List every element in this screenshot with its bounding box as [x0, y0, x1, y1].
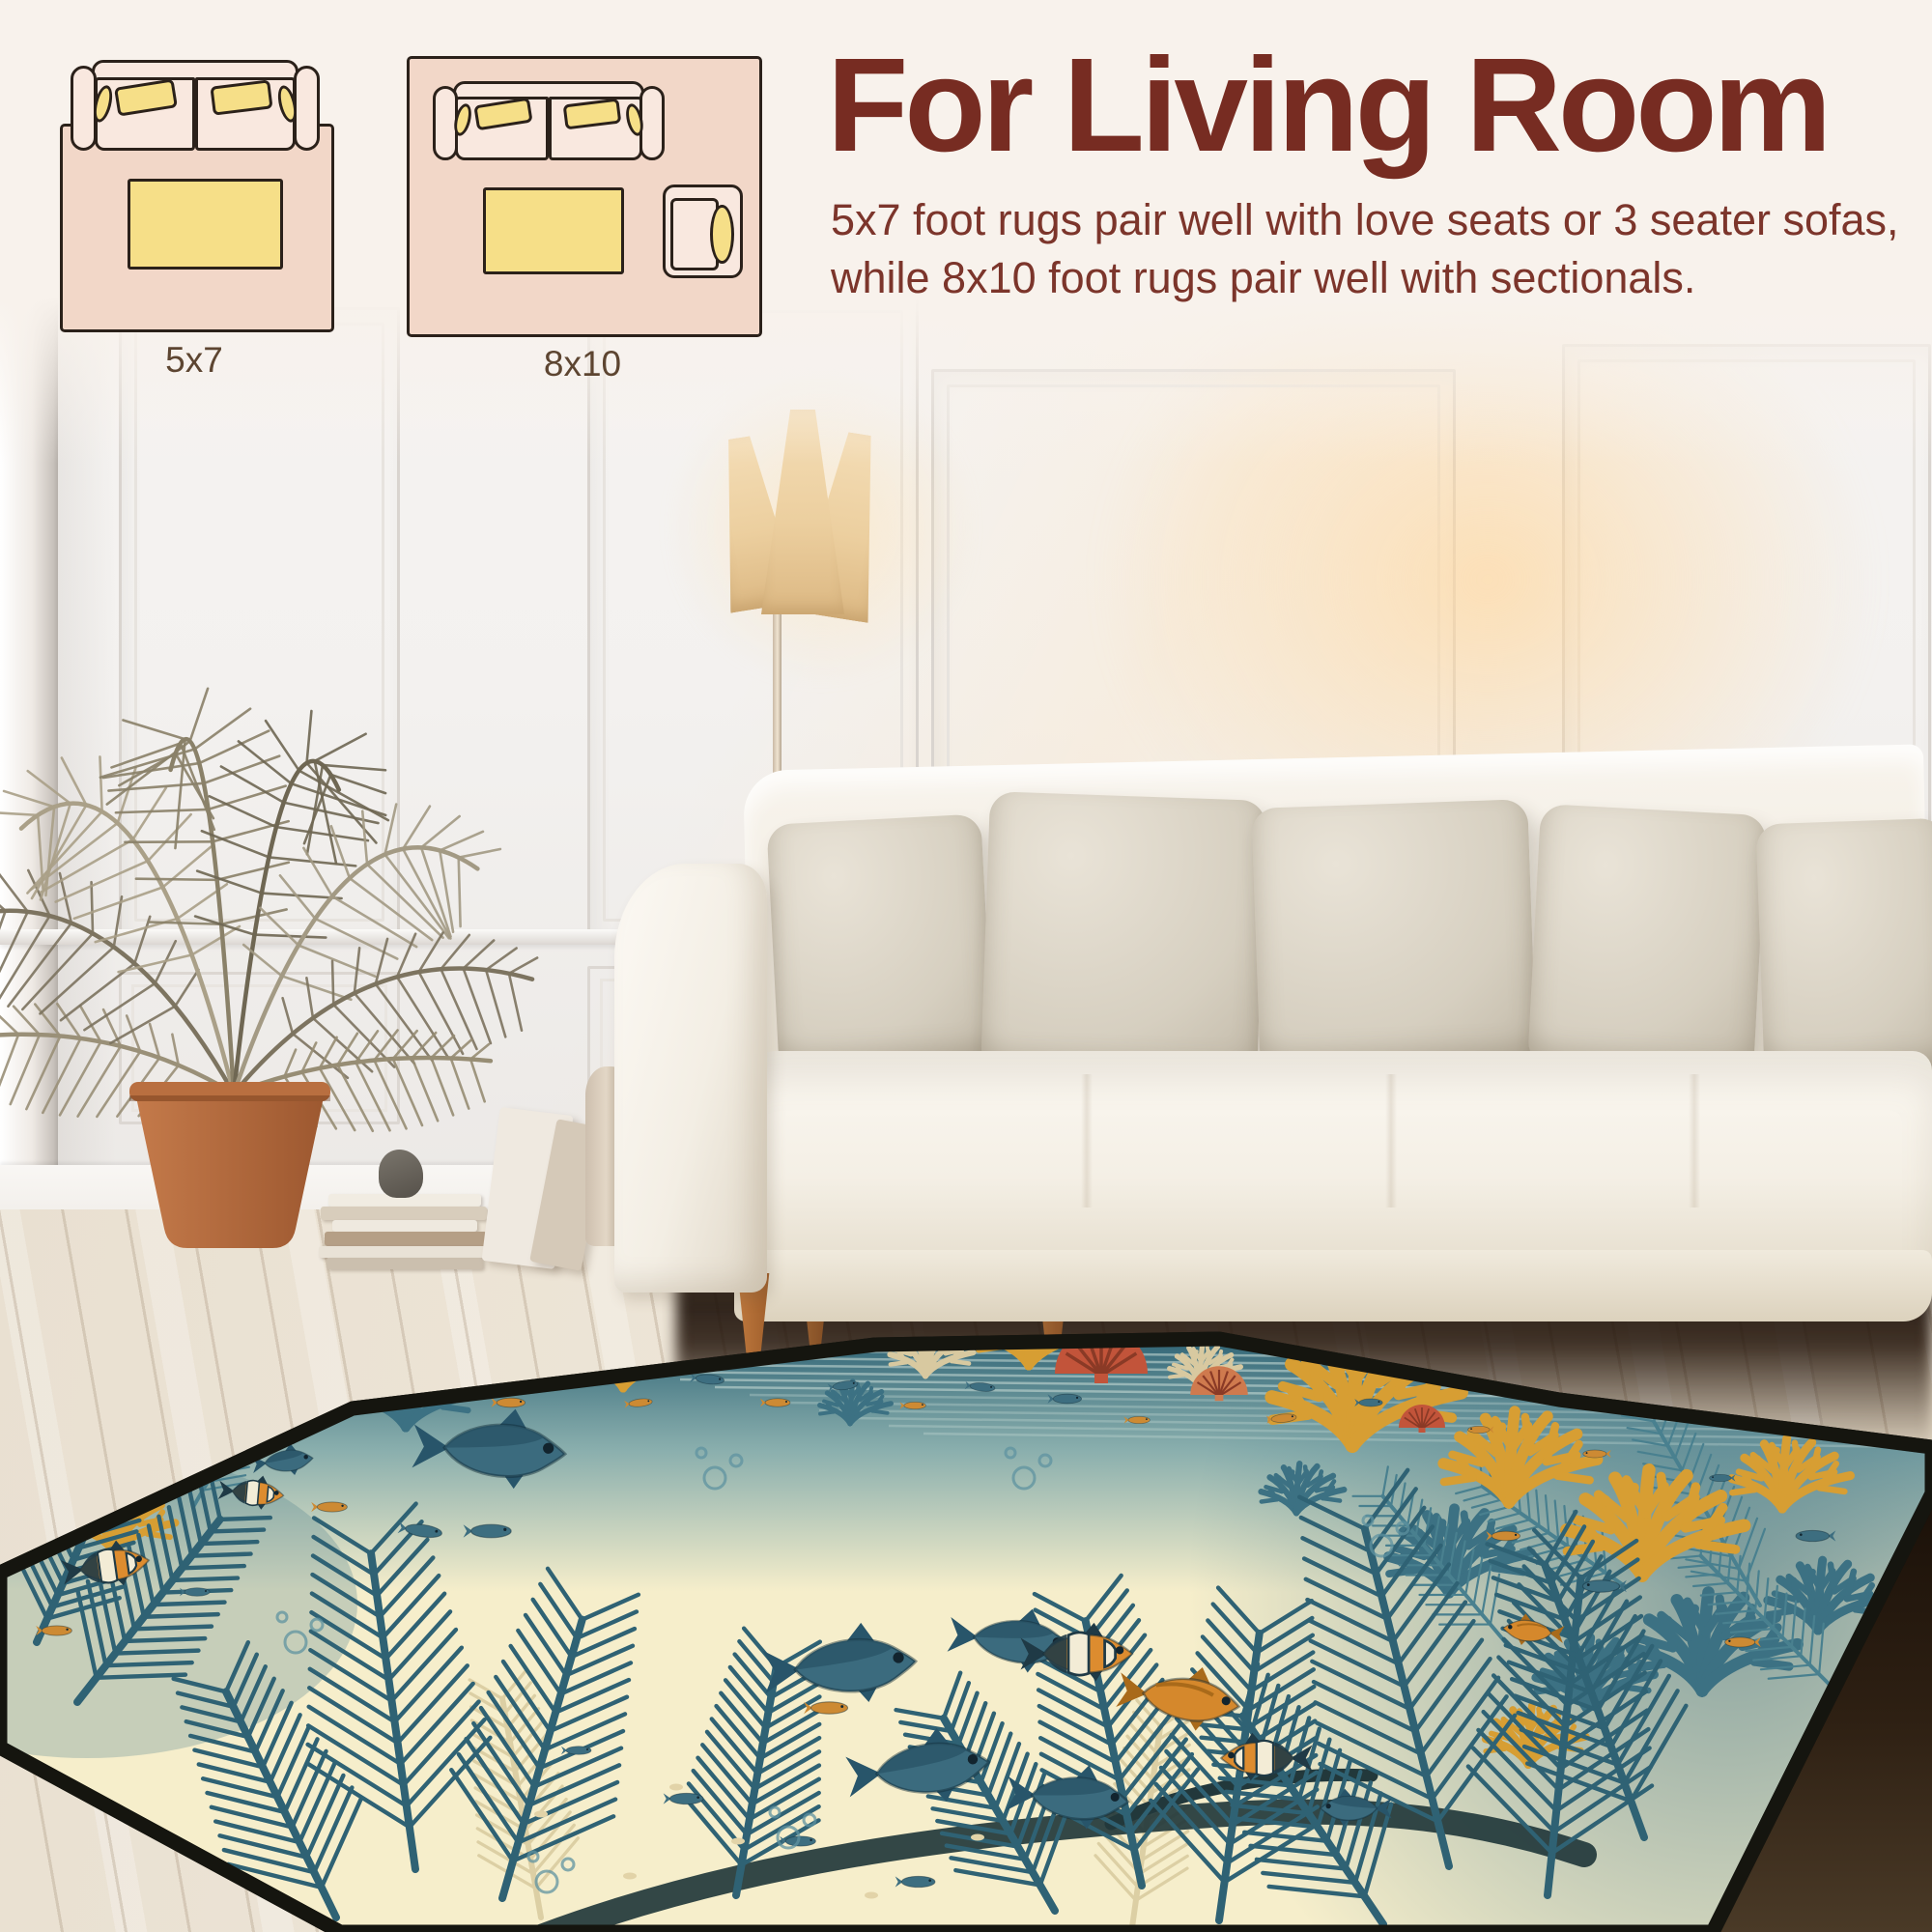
coffee-table-swatch	[128, 179, 283, 270]
sofa-top-view-icon	[75, 60, 315, 151]
fish-motif	[34, 1501, 73, 1512]
palm-frond-motif	[99, 1340, 225, 1466]
coffee-table-swatch	[483, 187, 624, 274]
header-band: For Living Room 5x7 foot rugs pair well …	[0, 0, 1932, 464]
sofa-top-view-icon	[438, 81, 660, 160]
fish-motif	[92, 1463, 131, 1473]
rug-size-diagram-8x10: 8x10	[404, 48, 761, 392]
size-label: 8x10	[404, 344, 761, 384]
page-title: For Living Room	[827, 29, 1928, 183]
coral-motif	[388, 1264, 566, 1369]
size-guide-description: 5x7 foot rugs pair well with love seats …	[831, 191, 1932, 307]
rug-size-diagram-5x7: 5x7	[54, 54, 334, 386]
coral-motif	[638, 1309, 732, 1365]
size-label: 5x7	[54, 340, 334, 381]
armchair-top-view-icon	[663, 185, 743, 278]
product-hero-image: For Living Room 5x7 foot rugs pair well …	[0, 0, 1932, 1932]
